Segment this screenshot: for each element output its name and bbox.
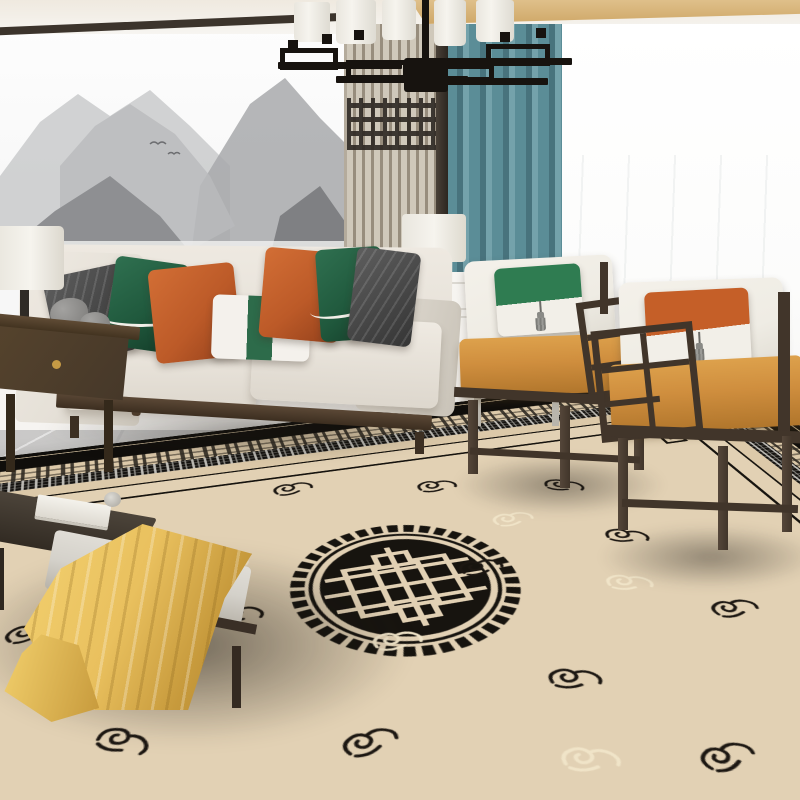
chair-leg — [618, 438, 628, 530]
table-leg — [6, 394, 15, 472]
chandelier-finial — [354, 30, 364, 40]
cloud-motif-dark — [701, 591, 768, 623]
chair-shadow — [600, 525, 800, 589]
chair-leg — [718, 446, 728, 550]
cloud-motif-dark — [689, 730, 768, 782]
tassel — [535, 318, 546, 332]
cloud-motif-dark — [541, 662, 611, 693]
table-leg — [0, 548, 4, 610]
drawer-knob — [52, 360, 61, 369]
chair-frame-post — [778, 292, 790, 442]
accent-pillow-green-tassel — [494, 263, 585, 337]
chair-leg — [468, 400, 478, 474]
chair-leg — [782, 436, 792, 532]
sofa-leg — [415, 432, 424, 454]
chandelier-finial — [536, 28, 546, 38]
table-leg — [104, 400, 113, 472]
table-lamp-shade-left — [0, 226, 64, 290]
lamp-shade — [434, 0, 466, 46]
chandelier-hub — [404, 58, 448, 92]
chair-leg — [560, 406, 570, 488]
cloud-motif-dark — [267, 476, 321, 500]
cloud-motif-cream — [554, 740, 631, 777]
sofa-pillow-charcoal-right — [347, 246, 422, 347]
chandelier-arm — [278, 62, 402, 69]
chandelier-finial — [322, 34, 332, 44]
chandelier — [278, 0, 574, 118]
bench-leg — [232, 646, 241, 708]
chandelier-finial — [500, 32, 510, 42]
cloud-motif-dark — [450, 552, 511, 581]
lamp-shade — [382, 0, 416, 40]
living-room-scene: Photograph of a modern Chinese-style liv… — [0, 0, 800, 800]
tassel — [698, 331, 701, 343]
decor-teapot — [104, 492, 121, 507]
cloud-motif-cream — [12, 794, 88, 800]
chair-frame-post — [600, 262, 608, 314]
sofa-leg — [70, 416, 79, 438]
chandelier-arm — [446, 58, 572, 65]
side-table-left-drawer — [0, 326, 129, 401]
